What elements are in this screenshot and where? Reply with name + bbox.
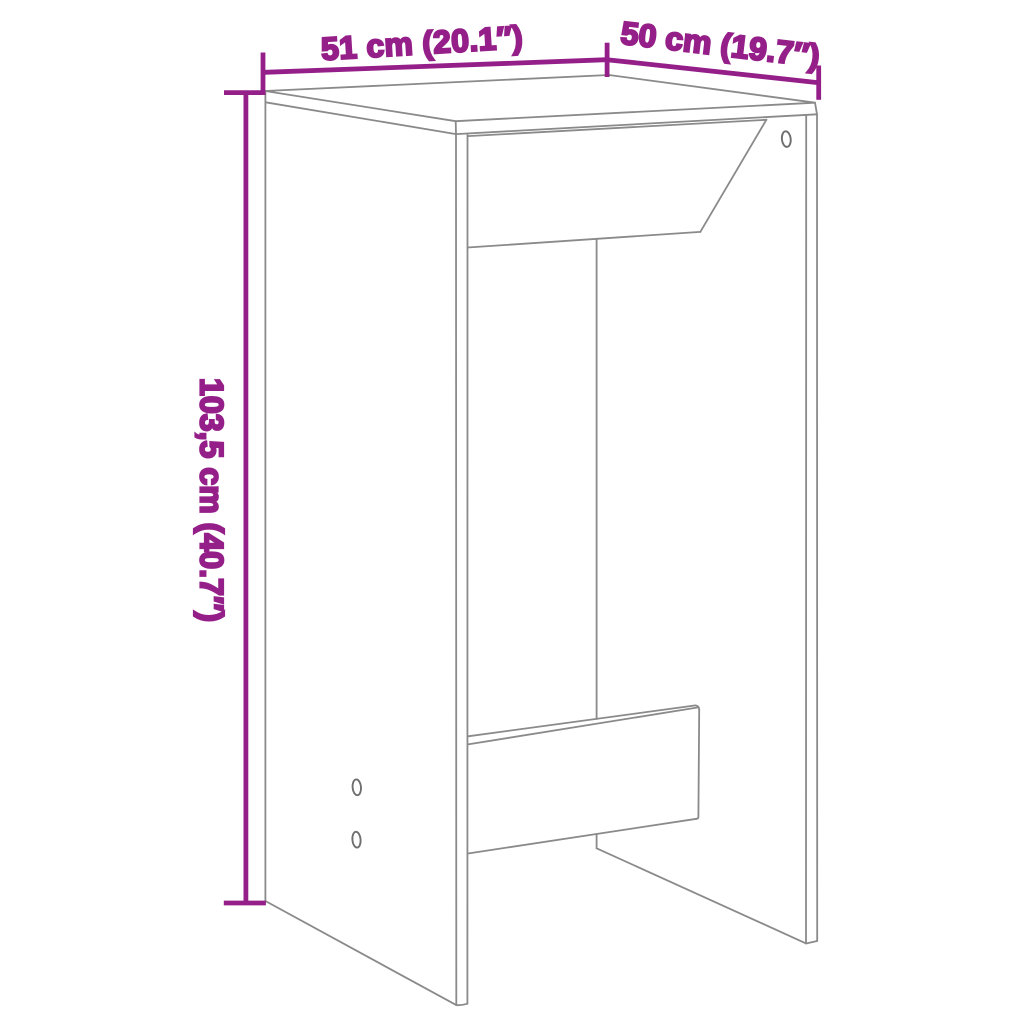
svg-text:103,5 cm (40.7″): 103,5 cm (40.7″) [193, 378, 229, 622]
